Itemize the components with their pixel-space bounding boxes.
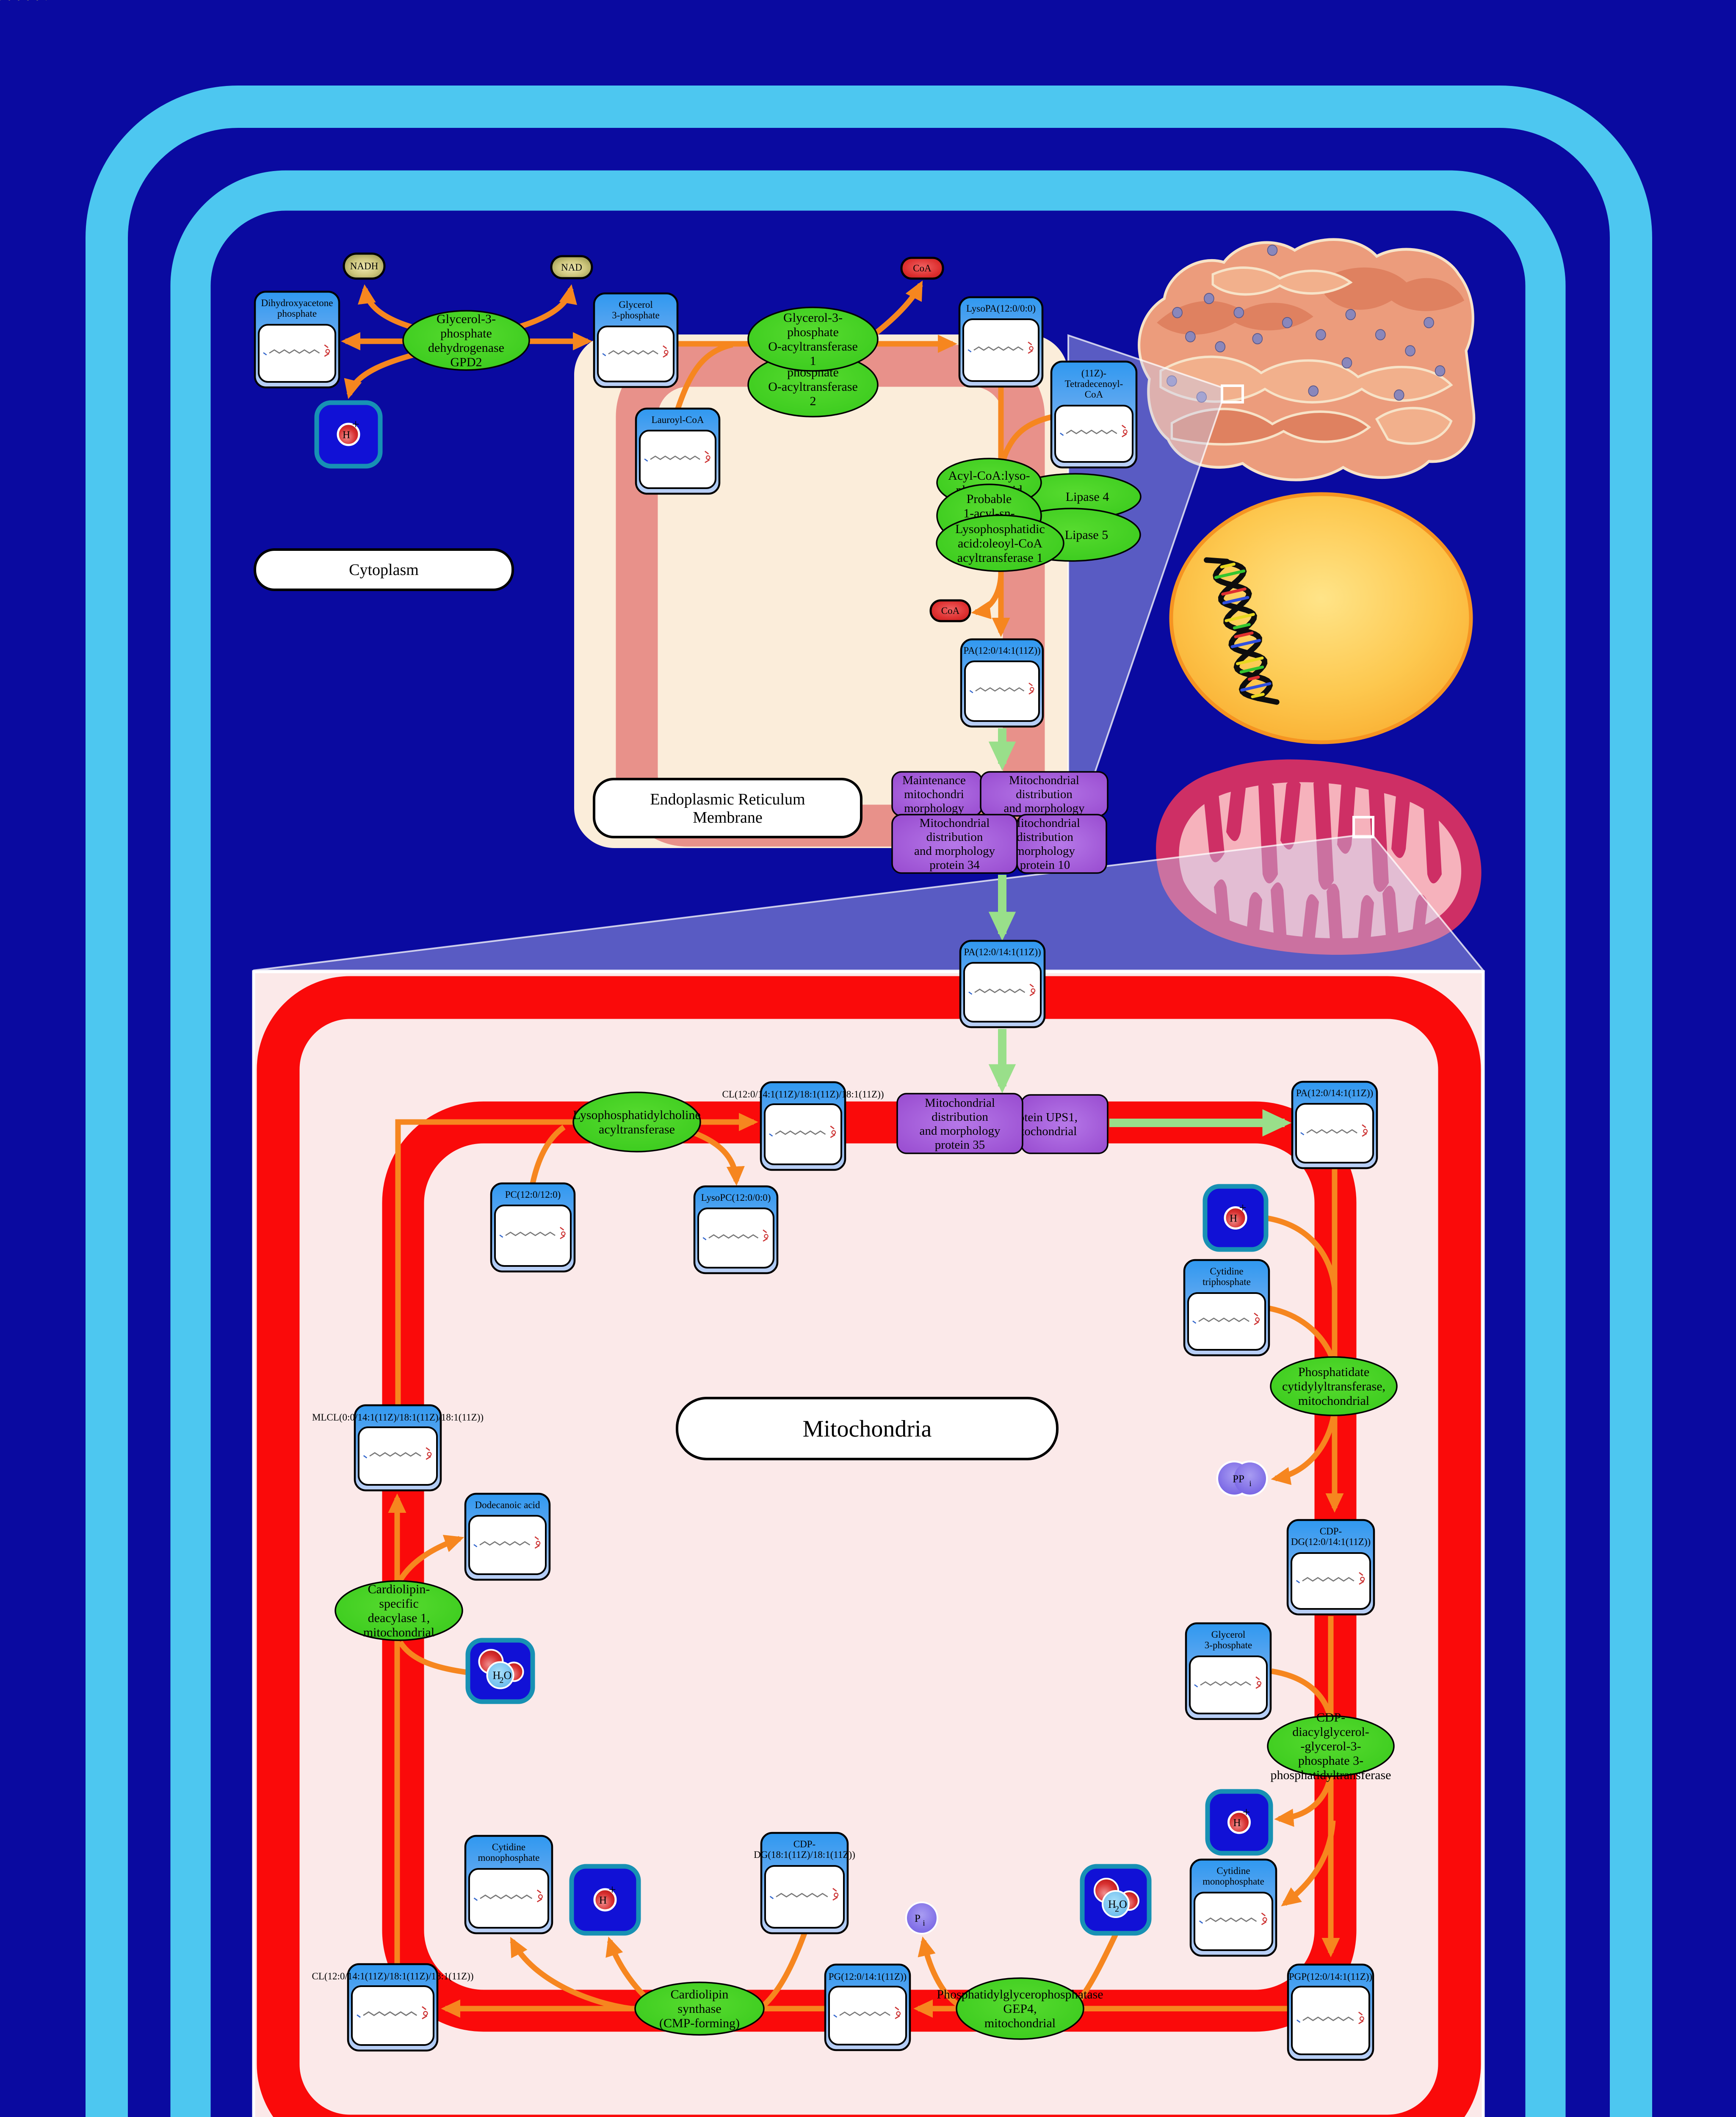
svg-text:acyltransferase 1: acyltransferase 1: [957, 551, 1043, 565]
svg-text:synthase: synthase: [677, 2002, 721, 2016]
svg-text:CDP-: CDP-: [1316, 1711, 1345, 1725]
svg-text:NADH: NADH: [350, 261, 378, 271]
svg-text:LysoPC(12:0/0:0): LysoPC(12:0/0:0): [701, 1192, 771, 1203]
svg-text:DG(12:0/14:1(11Z)): DG(12:0/14:1(11Z)): [1291, 1537, 1371, 1547]
svg-text:distribution: distribution: [932, 1110, 988, 1124]
svg-text:Glycerol: Glycerol: [619, 299, 652, 310]
svg-text:3-phosphate: 3-phosphate: [1205, 1640, 1252, 1650]
svg-text:CoA: CoA: [1085, 389, 1103, 400]
svg-text:diacylglycerol-: diacylglycerol-: [1292, 1725, 1369, 1739]
svg-text:3-phosphate: 3-phosphate: [612, 310, 659, 321]
svg-text:Cytoplasm: Cytoplasm: [349, 561, 419, 579]
svg-text:phosphatidyltransferase: phosphatidyltransferase: [1271, 1768, 1391, 1782]
svg-text:H: H: [599, 1895, 607, 1906]
svg-text:PA(12:0/14:1(11Z)): PA(12:0/14:1(11Z)): [964, 947, 1041, 957]
svg-text:i: i: [1249, 1479, 1251, 1488]
svg-text:Mitochondrial: Mitochondrial: [1010, 816, 1080, 830]
svg-text:LysoPA(12:0/0:0): LysoPA(12:0/0:0): [966, 303, 1036, 314]
svg-text:PP: PP: [1233, 1473, 1244, 1485]
svg-text:+: +: [1239, 1200, 1246, 1215]
svg-text:CDP-: CDP-: [793, 1839, 815, 1849]
svg-text:Cytidine: Cytidine: [1210, 1266, 1243, 1277]
svg-text:+: +: [352, 417, 359, 431]
svg-text:H: H: [1230, 1213, 1237, 1224]
svg-text:and morphology: and morphology: [914, 844, 995, 858]
svg-text:triphosphate: triphosphate: [1202, 1277, 1251, 1287]
svg-text:PA(12:0/14:1(11Z)): PA(12:0/14:1(11Z)): [1296, 1088, 1373, 1098]
svg-text:and morphology: and morphology: [920, 1124, 1001, 1138]
svg-text:acid:oleoyl-CoA: acid:oleoyl-CoA: [958, 536, 1042, 550]
svg-text:phosphate: phosphate: [440, 326, 492, 340]
svg-text:Lipase 4: Lipase 4: [1066, 490, 1109, 504]
svg-text:cytidylyltransferase,: cytidylyltransferase,: [1282, 1379, 1385, 1393]
svg-text:MLCL(0:0/14:1(11Z)/18:1(11Z)/1: MLCL(0:0/14:1(11Z)/18:1(11Z)/18:1(11Z)): [312, 1412, 484, 1423]
svg-text:PA(12:0/14:1(11Z)): PA(12:0/14:1(11Z)): [963, 645, 1040, 656]
svg-text:O-acyltransferase: O-acyltransferase: [768, 380, 858, 394]
svg-text:protein 34: protein 34: [929, 858, 980, 872]
svg-text:NAD: NAD: [561, 262, 582, 273]
svg-text:Probable: Probable: [967, 492, 1012, 506]
svg-text:CoA: CoA: [941, 605, 960, 616]
svg-text:Glycerol-3-: Glycerol-3-: [783, 311, 843, 325]
svg-text:monophosphate: monophosphate: [478, 1852, 540, 1863]
svg-text:(11Z)-: (11Z)-: [1081, 368, 1106, 379]
svg-text:Lauroyl-CoA: Lauroyl-CoA: [652, 415, 704, 425]
svg-text:distribution: distribution: [1016, 788, 1073, 801]
svg-text:Mitochondrial: Mitochondrial: [1009, 774, 1079, 787]
svg-text:mitochondrial: mitochondrial: [1298, 1394, 1369, 1408]
svg-text:CL(12:0/14:1(11Z)/18:1(11Z)/18: CL(12:0/14:1(11Z)/18:1(11Z)/18:1(11Z)): [312, 1971, 474, 1982]
svg-text:+: +: [608, 1882, 616, 1897]
svg-text:O: O: [1119, 1898, 1127, 1910]
svg-text:protein 10: protein 10: [1020, 858, 1070, 872]
svg-text:DG(18:1(11Z)/18:1(11Z)): DG(18:1(11Z)/18:1(11Z)): [754, 1849, 855, 1860]
svg-text:Lysophosphatidylcholine: Lysophosphatidylcholine: [573, 1108, 701, 1122]
svg-text:Phosphatidylglycerophosphatase: Phosphatidylglycerophosphatase: [937, 1987, 1103, 2001]
svg-text:Cytidine: Cytidine: [1216, 1866, 1250, 1876]
svg-text:Dodecanoic acid: Dodecanoic acid: [475, 1500, 540, 1510]
svg-text:PG(12:0/14:1(11Z)): PG(12:0/14:1(11Z)): [829, 1971, 907, 1982]
svg-text:(CMP-forming): (CMP-forming): [659, 2016, 740, 2030]
svg-text:Lysophosphatidic: Lysophosphatidic: [955, 522, 1045, 536]
svg-text:2: 2: [1115, 1904, 1119, 1914]
svg-text:Phosphatidate: Phosphatidate: [1298, 1365, 1369, 1379]
svg-text:phosphate 3-: phosphate 3-: [1298, 1754, 1363, 1768]
svg-text:Endoplasmic Reticulum: Endoplasmic Reticulum: [650, 790, 805, 808]
svg-text:2: 2: [810, 394, 816, 408]
svg-text:GEP4,: GEP4,: [1003, 2002, 1037, 2016]
svg-text:Cardiolipin: Cardiolipin: [671, 1987, 729, 2001]
svg-text:dehydrogenase: dehydrogenase: [428, 341, 504, 355]
svg-text:Glycerol: Glycerol: [1211, 1629, 1245, 1640]
svg-text:Glycerol-3-: Glycerol-3-: [437, 312, 496, 326]
svg-text:deacylase 1,: deacylase 1,: [368, 1611, 430, 1625]
svg-text:morphology: morphology: [904, 801, 964, 815]
svg-text:Cardiolipin-: Cardiolipin-: [368, 1582, 430, 1596]
svg-text:acyltransferase: acyltransferase: [599, 1122, 675, 1136]
svg-text:morphology: morphology: [1015, 844, 1075, 858]
svg-text:H: H: [343, 429, 350, 441]
svg-text:CDP-: CDP-: [1320, 1526, 1342, 1537]
svg-text:Membrane: Membrane: [693, 809, 763, 826]
svg-text:GPD2: GPD2: [450, 355, 482, 369]
svg-text:mitochondrial: mitochondrial: [984, 2016, 1056, 2030]
svg-text:PC(12:0/12:0): PC(12:0/12:0): [505, 1189, 561, 1200]
svg-text:H: H: [1233, 1817, 1241, 1829]
svg-text:Mitochondrial: Mitochondrial: [925, 1096, 995, 1110]
svg-text:i: i: [923, 1919, 925, 1928]
svg-text:distribution: distribution: [926, 830, 983, 844]
svg-text:P: P: [915, 1913, 921, 1924]
svg-text:Tetradecenoyl-: Tetradecenoyl-: [1065, 379, 1123, 389]
svg-text:PGP(12:0/14:1(11Z)): PGP(12:0/14:1(11Z)): [1289, 1971, 1372, 1982]
svg-text:phosphate: phosphate: [787, 325, 839, 339]
svg-text:-glycerol-3-: -glycerol-3-: [1300, 1739, 1361, 1753]
svg-text:Acyl-CoA:lyso-: Acyl-CoA:lyso-: [948, 469, 1030, 483]
svg-text:protein 35: protein 35: [935, 1138, 985, 1152]
svg-text:CL(12:0/14:1(11Z)/18:1(11Z)/18: CL(12:0/14:1(11Z)/18:1(11Z)/18:1(11Z)): [722, 1089, 884, 1100]
svg-text:specific: specific: [379, 1597, 418, 1611]
svg-text:Cytidine: Cytidine: [492, 1842, 525, 1852]
svg-text:mitochondrial: mitochondrial: [363, 1625, 434, 1639]
svg-text:Dihydroxyacetone: Dihydroxyacetone: [261, 298, 333, 308]
svg-text:+: +: [1243, 1805, 1250, 1819]
svg-text:O: O: [504, 1669, 512, 1682]
svg-text:Mitochondria: Mitochondria: [803, 1416, 932, 1442]
svg-text:phosphate: phosphate: [277, 308, 317, 319]
svg-text:2: 2: [500, 1676, 504, 1685]
svg-text:Maintenance: Maintenance: [902, 774, 966, 787]
svg-text:1: 1: [810, 354, 816, 368]
svg-text:CoA: CoA: [913, 263, 932, 274]
svg-text:O-acyltransferase: O-acyltransferase: [768, 340, 858, 354]
svg-text:Lipase 5: Lipase 5: [1065, 528, 1108, 542]
svg-text:and morphology: and morphology: [1004, 801, 1085, 815]
svg-text:mitochondri: mitochondri: [904, 788, 964, 801]
svg-text:Mitochondrial: Mitochondrial: [920, 816, 990, 830]
svg-text:distribution: distribution: [1017, 830, 1073, 844]
svg-text:monophosphate: monophosphate: [1202, 1876, 1264, 1887]
